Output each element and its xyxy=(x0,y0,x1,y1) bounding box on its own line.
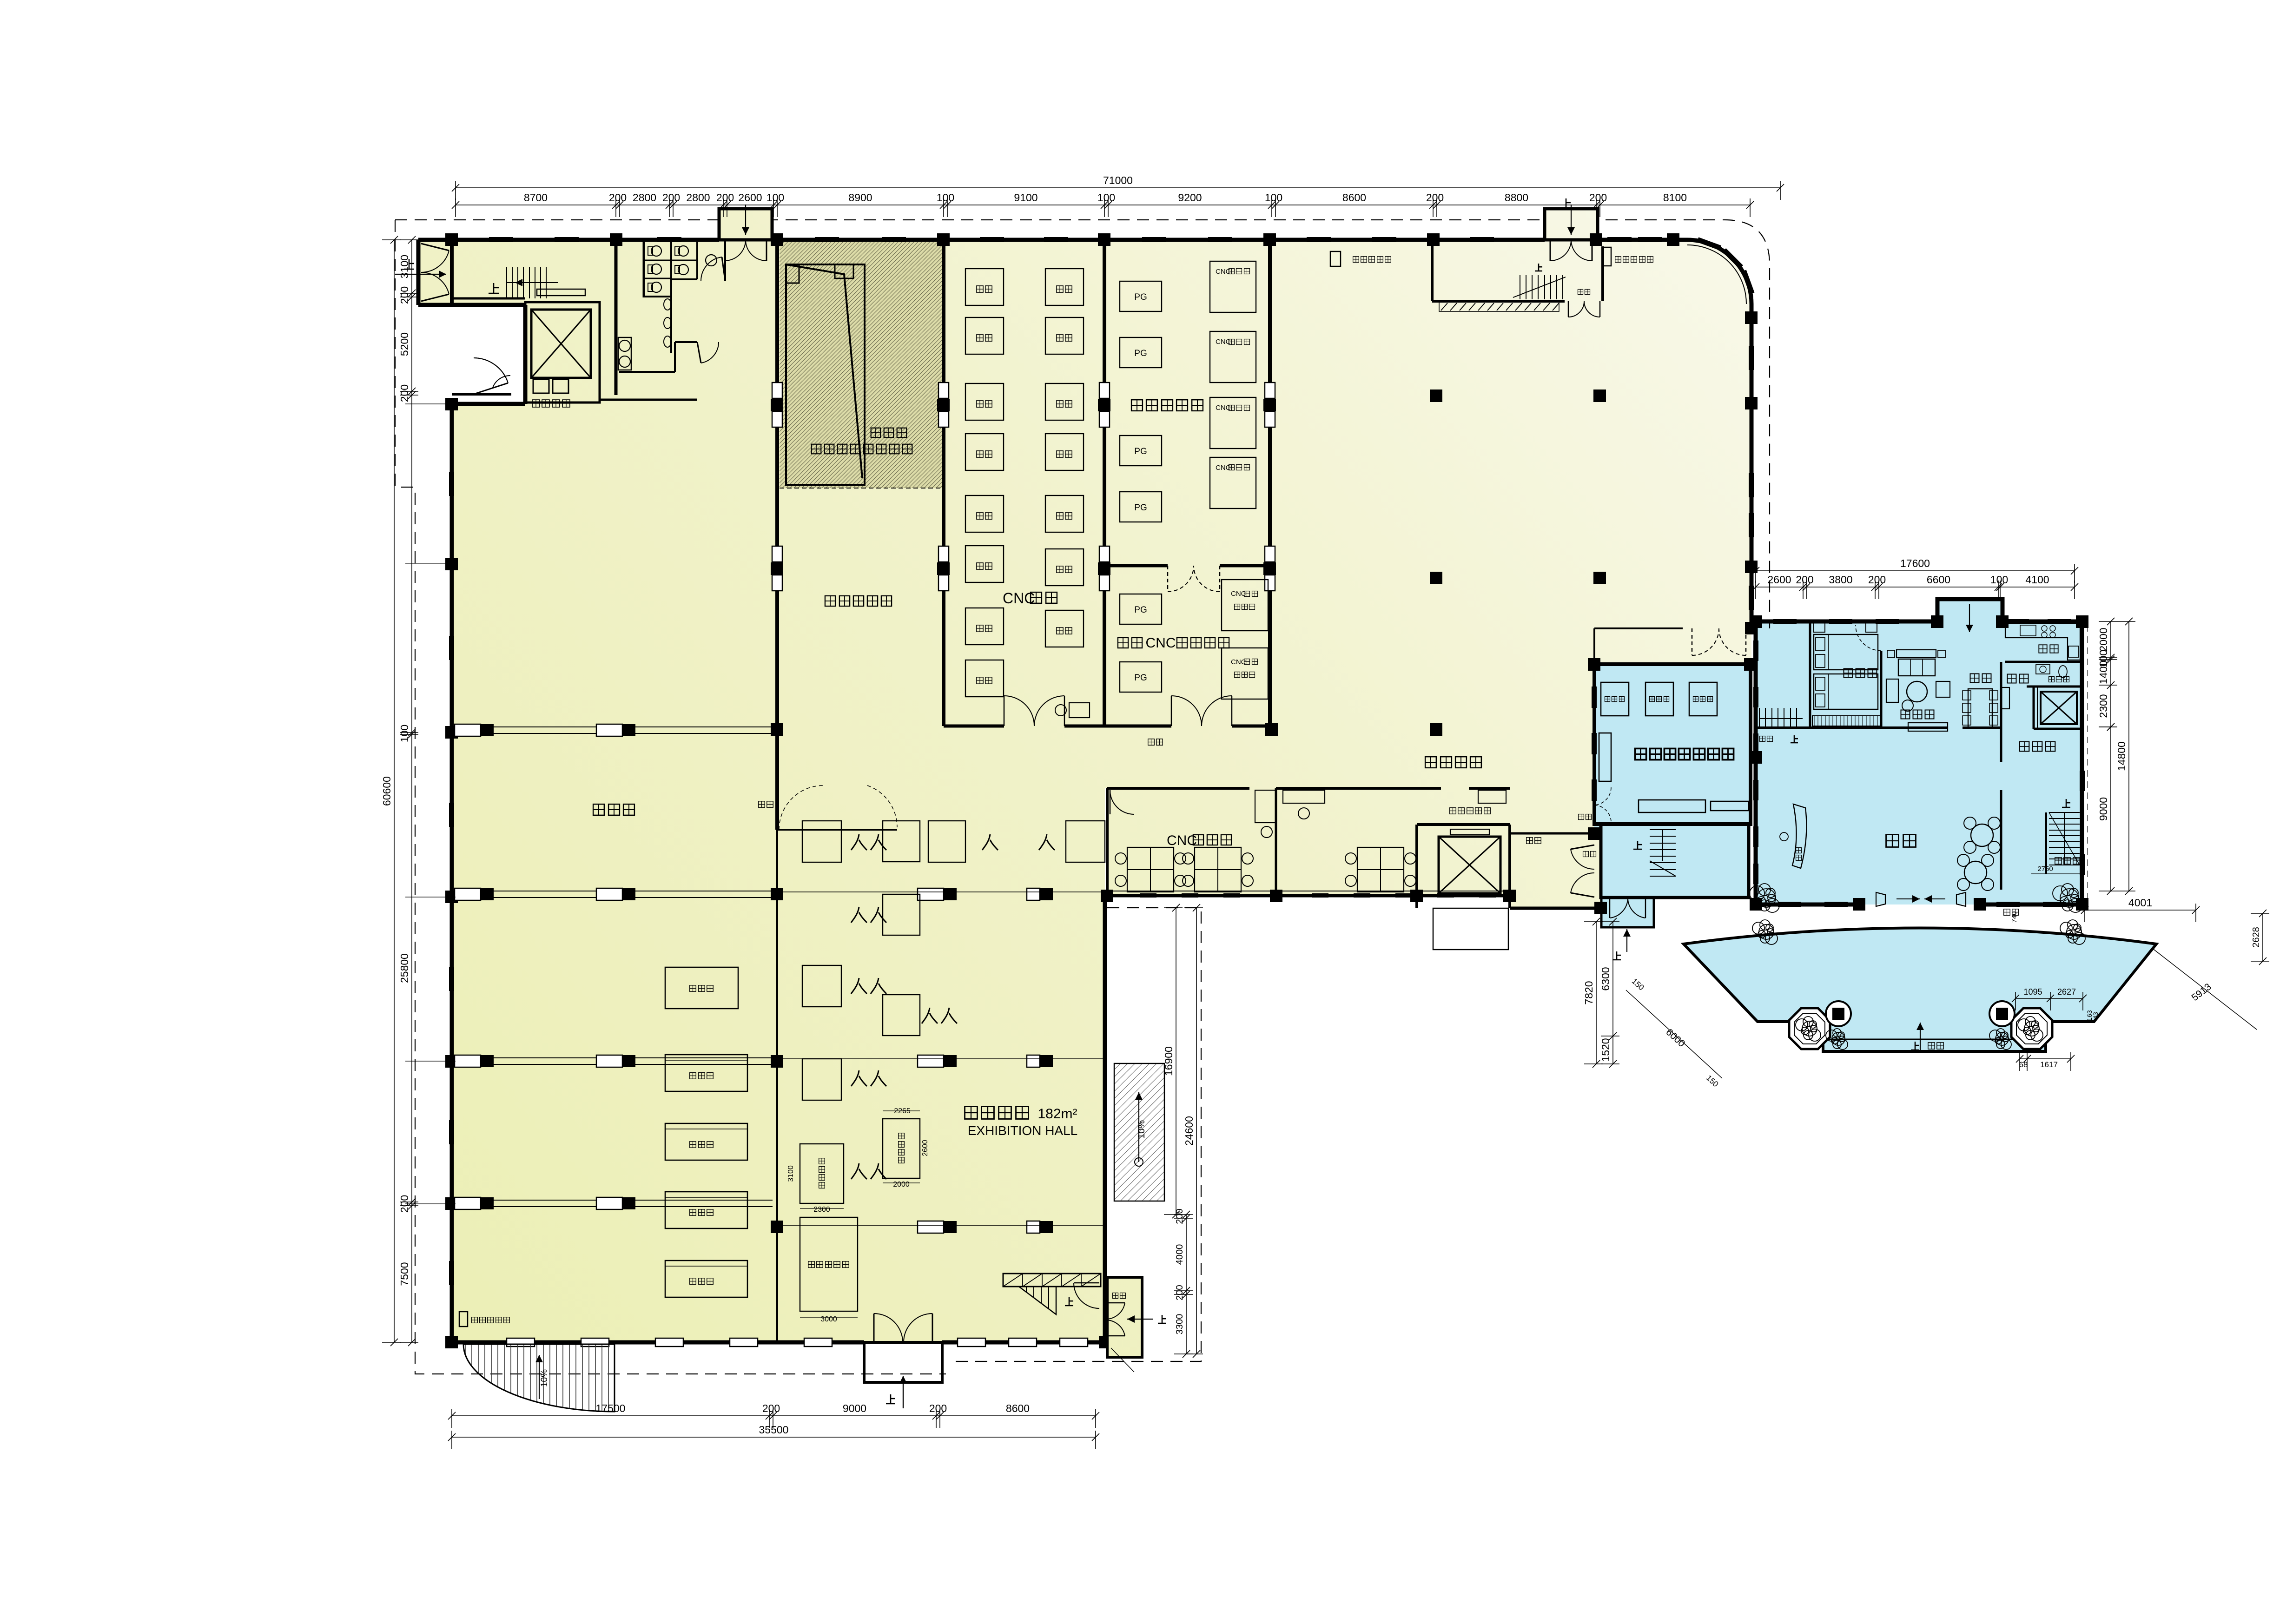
svg-text:EXHIBITION HALL: EXHIBITION HALL xyxy=(968,1123,1078,1138)
svg-text:8800: 8800 xyxy=(1505,191,1528,204)
svg-text:8600: 8600 xyxy=(1006,1402,1030,1414)
svg-text:PG: PG xyxy=(1134,605,1147,615)
svg-text:740: 740 xyxy=(2010,911,2018,923)
svg-text:2600: 2600 xyxy=(738,191,762,204)
svg-text:200: 200 xyxy=(929,1402,947,1414)
svg-text:35500: 35500 xyxy=(759,1424,789,1436)
svg-text:3800: 3800 xyxy=(1829,574,1852,586)
svg-text:200: 200 xyxy=(1868,574,1886,586)
svg-text:8700: 8700 xyxy=(524,191,548,204)
svg-text:200: 200 xyxy=(398,384,410,402)
svg-text:CNC: CNC xyxy=(1231,590,1246,598)
svg-text:10%: 10% xyxy=(540,1369,549,1387)
svg-text:8100: 8100 xyxy=(1663,191,1687,204)
svg-text:200: 200 xyxy=(762,1402,780,1414)
svg-text:3100: 3100 xyxy=(398,255,410,278)
svg-text:17500: 17500 xyxy=(596,1402,626,1414)
svg-text:100: 100 xyxy=(767,191,784,204)
svg-text:CNC: CNC xyxy=(1231,658,1246,666)
svg-text:CNC: CNC xyxy=(1216,464,1231,472)
svg-text:8600: 8600 xyxy=(1342,191,1366,204)
svg-text:2000: 2000 xyxy=(893,1181,910,1188)
svg-text:PG: PG xyxy=(1134,349,1147,358)
svg-text:CNC: CNC xyxy=(1146,635,1176,651)
svg-text:2750: 2750 xyxy=(2037,865,2053,873)
svg-text:2600: 2600 xyxy=(921,1140,929,1156)
svg-text:182m²: 182m² xyxy=(1037,1106,1077,1122)
svg-text:200: 200 xyxy=(1175,1285,1185,1300)
svg-text:PG: PG xyxy=(1134,673,1147,683)
svg-text:1520: 1520 xyxy=(1599,1038,1612,1062)
svg-text:6300: 6300 xyxy=(1599,967,1612,990)
svg-text:100: 100 xyxy=(1265,191,1282,204)
svg-text:5200: 5200 xyxy=(398,332,410,356)
svg-text:200: 200 xyxy=(716,191,734,204)
svg-text:1095: 1095 xyxy=(2023,987,2042,997)
svg-text:PG: PG xyxy=(1134,447,1147,456)
svg-text:CNC: CNC xyxy=(1167,833,1197,848)
svg-text:60600: 60600 xyxy=(381,776,393,806)
svg-text:1400: 1400 xyxy=(2097,660,2109,684)
svg-text:2000: 2000 xyxy=(2097,627,2109,651)
svg-text:2300: 2300 xyxy=(2097,694,2109,718)
svg-text:9100: 9100 xyxy=(1014,191,1037,204)
svg-text:4000: 4000 xyxy=(1175,1244,1185,1265)
svg-text:2627: 2627 xyxy=(2057,987,2076,997)
svg-text:CNC: CNC xyxy=(1216,338,1231,346)
svg-text:4100: 4100 xyxy=(2025,574,2049,586)
svg-text:9000: 9000 xyxy=(2097,797,2109,821)
svg-text:2800: 2800 xyxy=(633,191,656,204)
svg-text:7500: 7500 xyxy=(398,1262,410,1286)
svg-text:8900: 8900 xyxy=(848,191,872,204)
svg-text:43: 43 xyxy=(2092,1012,2099,1019)
svg-text:3100: 3100 xyxy=(787,1165,795,1182)
svg-text:3300: 3300 xyxy=(1175,1314,1185,1335)
svg-text:2628: 2628 xyxy=(2251,927,2261,948)
svg-text:6600: 6600 xyxy=(1927,574,1950,586)
svg-text:200: 200 xyxy=(1589,191,1607,204)
svg-text:14800: 14800 xyxy=(2115,741,2128,771)
svg-text:100: 100 xyxy=(1097,191,1115,204)
svg-text:16900: 16900 xyxy=(1163,1046,1175,1076)
svg-text:CNC: CNC xyxy=(1216,268,1231,276)
svg-text:7820: 7820 xyxy=(1583,981,1595,1004)
svg-text:9000: 9000 xyxy=(843,1402,866,1414)
svg-text:2300: 2300 xyxy=(813,1206,830,1214)
svg-text:200: 200 xyxy=(1426,191,1444,204)
svg-text:PG: PG xyxy=(1134,292,1147,302)
svg-text:1617: 1617 xyxy=(2040,1060,2058,1069)
svg-text:9200: 9200 xyxy=(1178,191,1202,204)
svg-text:200: 200 xyxy=(609,191,627,204)
svg-text:200: 200 xyxy=(398,286,410,304)
svg-text:200: 200 xyxy=(1796,574,1813,586)
svg-text:200: 200 xyxy=(1175,1208,1185,1224)
svg-text:10%: 10% xyxy=(1137,1120,1147,1139)
svg-text:2800: 2800 xyxy=(686,191,710,204)
svg-text:100: 100 xyxy=(1990,574,2008,586)
svg-text:71000: 71000 xyxy=(1103,174,1133,186)
svg-text:3000: 3000 xyxy=(820,1315,837,1323)
svg-text:200: 200 xyxy=(662,191,680,204)
svg-text:CNC: CNC xyxy=(1216,404,1231,412)
svg-text:68: 68 xyxy=(2019,1060,2028,1069)
svg-text:2600: 2600 xyxy=(1767,574,1791,586)
svg-text:PG: PG xyxy=(1134,503,1147,513)
svg-text:24600: 24600 xyxy=(1183,1116,1195,1146)
svg-text:100: 100 xyxy=(937,191,954,204)
svg-text:25800: 25800 xyxy=(398,953,410,983)
svg-text:4001: 4001 xyxy=(2128,897,2152,909)
svg-text:17600: 17600 xyxy=(1900,557,1930,569)
svg-text:100: 100 xyxy=(398,725,410,742)
